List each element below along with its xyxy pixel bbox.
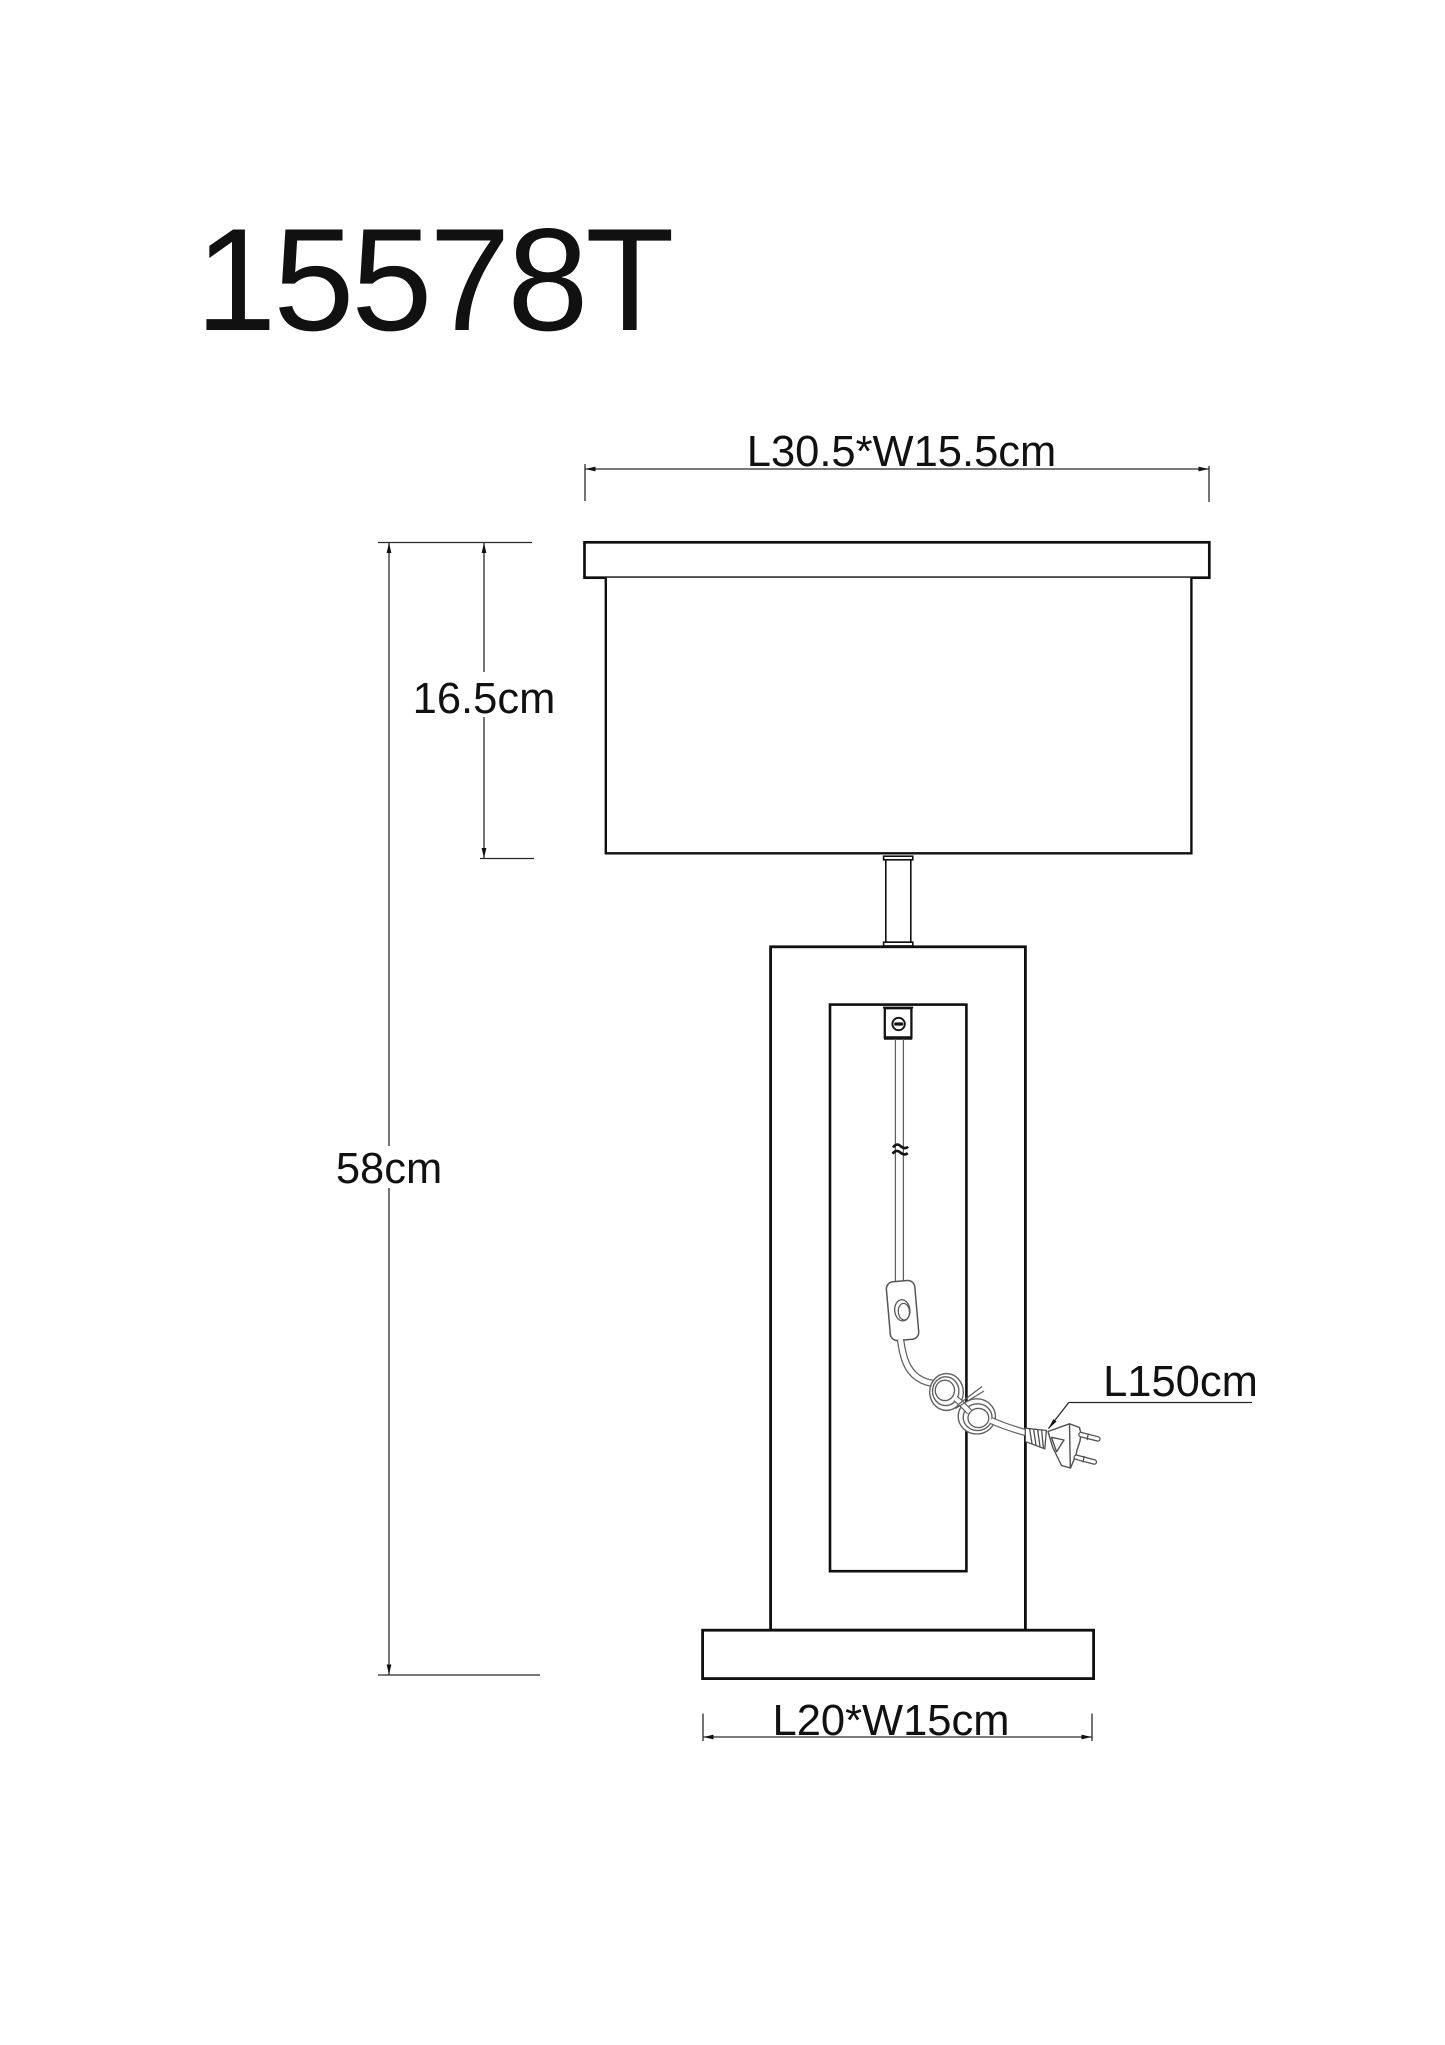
svg-text:L30.5*W15.5cm: L30.5*W15.5cm bbox=[747, 428, 1057, 476]
svg-text:15578T: 15578T bbox=[195, 198, 671, 361]
svg-text:L20*W15cm: L20*W15cm bbox=[773, 1697, 1010, 1745]
svg-text:16.5cm: 16.5cm bbox=[413, 675, 556, 723]
svg-text:L150cm: L150cm bbox=[1103, 1358, 1258, 1406]
svg-text:58cm: 58cm bbox=[336, 1145, 442, 1193]
